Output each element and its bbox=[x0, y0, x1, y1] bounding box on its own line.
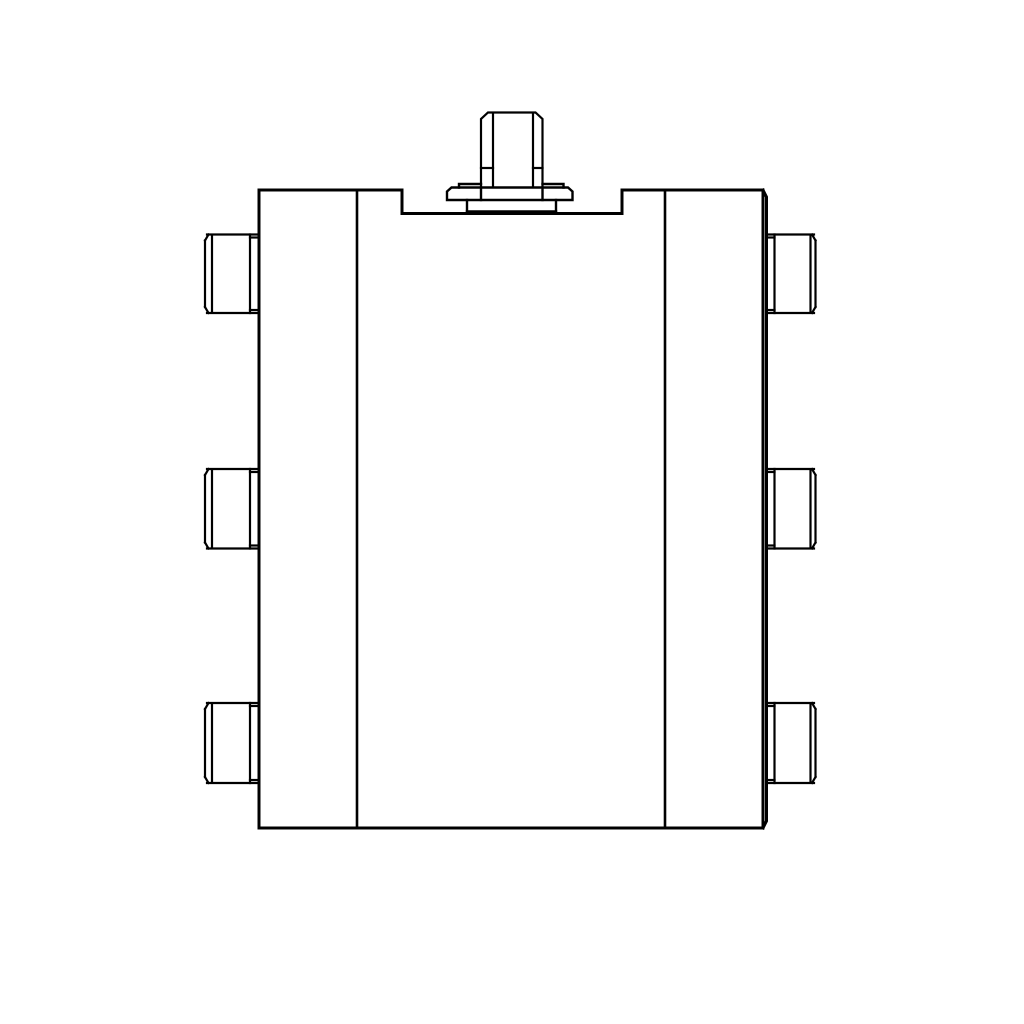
main-body-outline bbox=[259, 190, 767, 828]
top-fitting-stem bbox=[481, 113, 543, 188]
top-fitting-base-block bbox=[467, 200, 556, 214]
port-boss-right-bottom bbox=[767, 703, 816, 783]
port-boss-left-top bbox=[205, 235, 259, 314]
port-boss-left-bottom bbox=[205, 703, 259, 783]
port-boss-right-middle bbox=[767, 469, 816, 549]
port-boss-left-middle bbox=[205, 469, 259, 549]
drawing-page bbox=[0, 0, 1024, 1024]
technical-drawing-valve-block bbox=[0, 0, 1024, 1024]
port-boss-right-top bbox=[767, 235, 816, 314]
top-fitting-flange bbox=[447, 184, 573, 200]
